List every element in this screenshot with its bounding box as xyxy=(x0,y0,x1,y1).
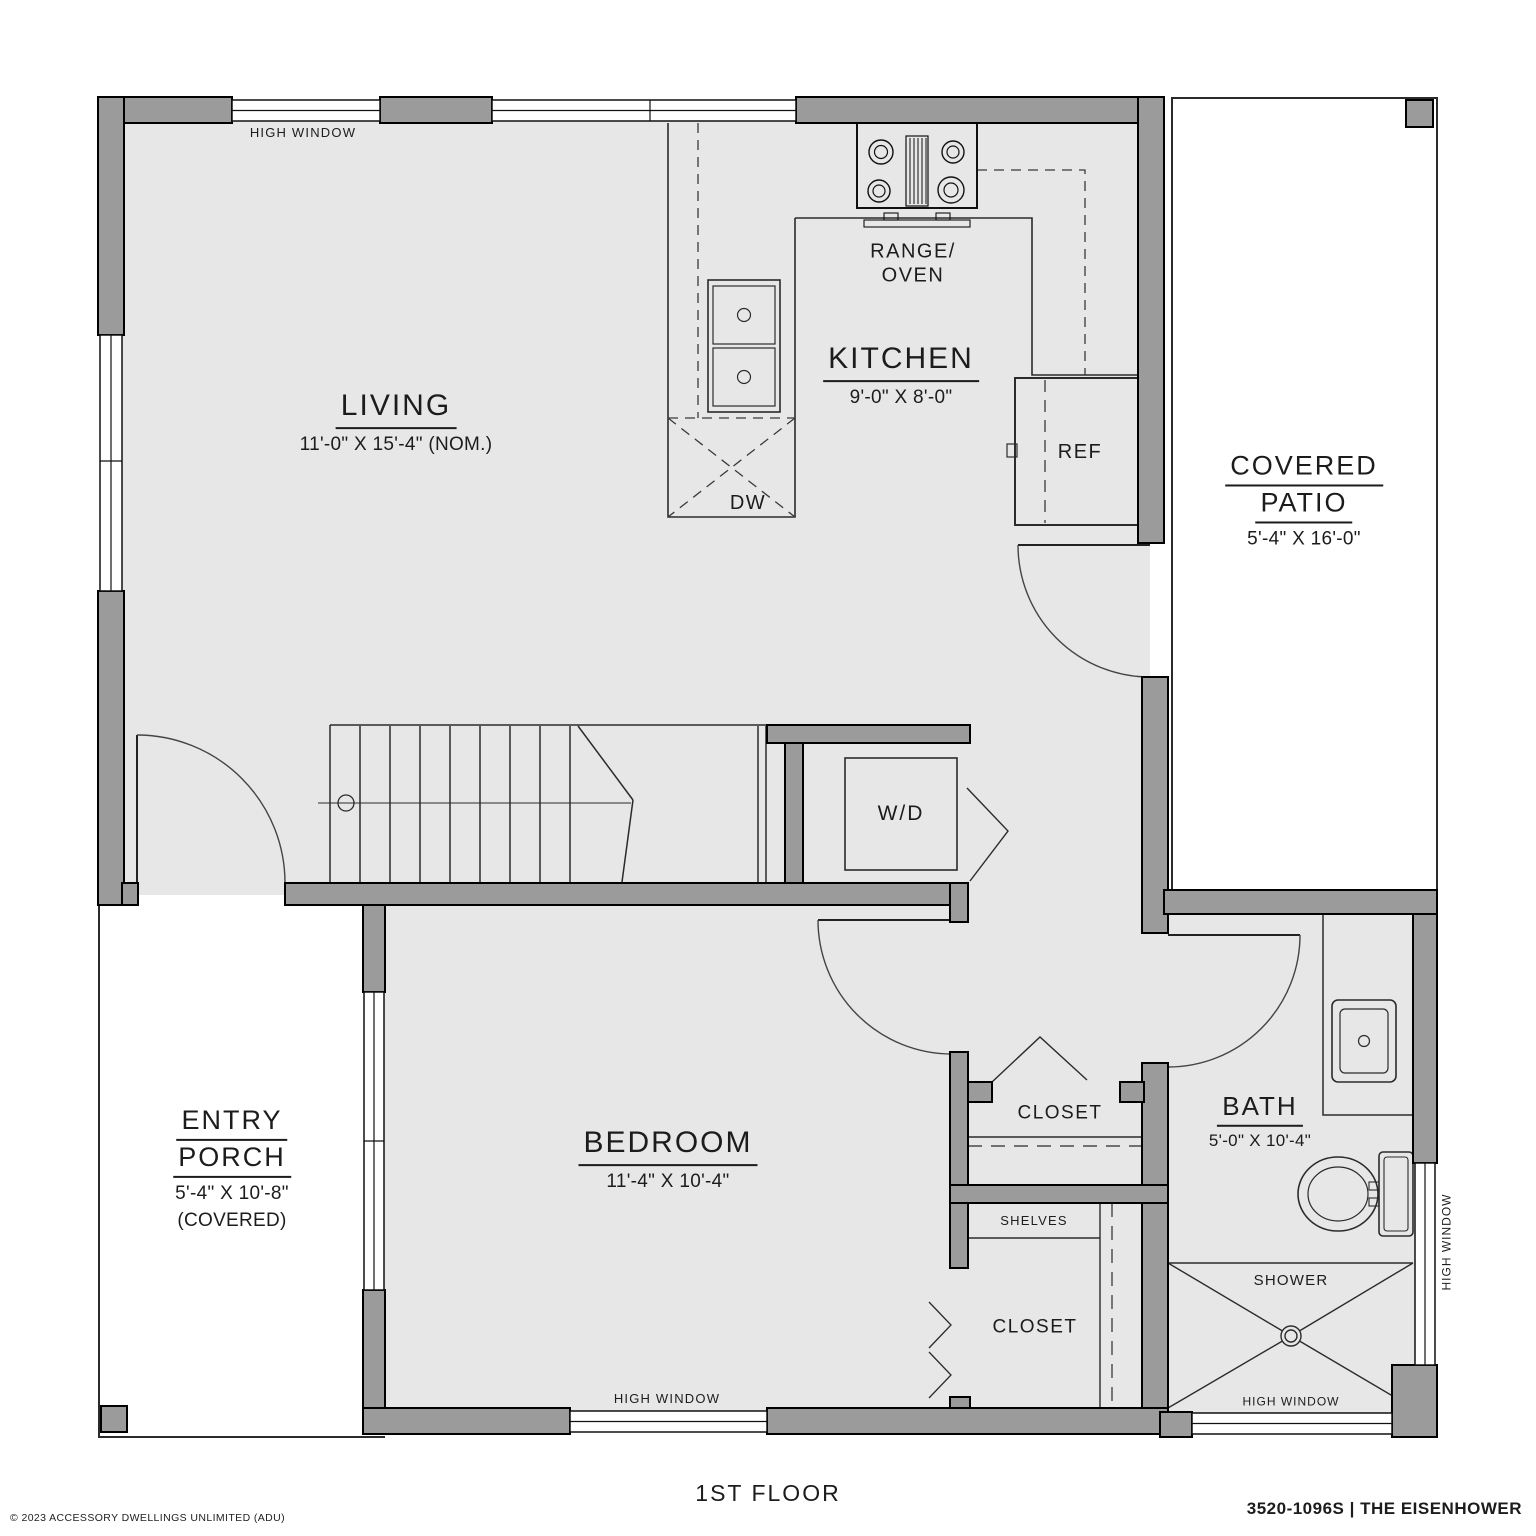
high-window-label-bedroom: HIGH WINDOW xyxy=(614,1391,720,1407)
closet-lower-label: CLOSET xyxy=(992,1315,1077,1338)
living-room-name: LIVING xyxy=(336,388,456,429)
ref-label: REF xyxy=(1058,440,1103,464)
bedroom-name: BEDROOM xyxy=(578,1125,757,1166)
shower-label: SHOWER xyxy=(1254,1272,1329,1290)
bedroom-dims: 11'-4" X 10'-4" xyxy=(578,1170,757,1193)
bedroom-label: BEDROOM 11'-4" X 10'-4" xyxy=(578,1125,757,1193)
dw-label: DW xyxy=(730,491,766,515)
porch-dims: 5'-4" X 10'-8" xyxy=(173,1182,291,1205)
high-window-label-bath-east: HIGH WINDOW xyxy=(1440,1194,1455,1291)
bath-label: BATH 5'-0" X 10'-4" xyxy=(1209,1091,1311,1151)
floor-title: 1ST FLOOR xyxy=(695,1479,840,1507)
shelves-label: SHELVES xyxy=(1000,1213,1067,1229)
kitchen-dims: 9'-0" X 8'-0" xyxy=(823,386,979,409)
floorplan-sheet: HIGH WINDOW LIVING 11'-0" X 15'-4" (NOM.… xyxy=(0,0,1536,1536)
porch-note: (COVERED) xyxy=(173,1209,291,1232)
living-room-dims: 11'-0" X 15'-4" (NOM.) xyxy=(300,433,493,456)
porch-name-line2: PORCH xyxy=(173,1141,291,1178)
kitchen-name: KITCHEN xyxy=(823,341,979,382)
bath-name: BATH xyxy=(1217,1091,1302,1127)
high-window-label-bath-south: HIGH WINDOW xyxy=(1243,1395,1340,1410)
patio-dims: 5'-4" X 16'-0" xyxy=(1225,527,1383,550)
labels-overlay: HIGH WINDOW LIVING 11'-0" X 15'-4" (NOM.… xyxy=(0,0,1536,1536)
bath-dims: 5'-0" X 10'-4" xyxy=(1209,1130,1311,1151)
plan-code: 3520-1096S | THE EISENHOWER xyxy=(1247,1499,1522,1519)
high-window-label-top: HIGH WINDOW xyxy=(250,125,356,141)
covered-patio-label: COVERED PATIO 5'-4" X 16'-0" xyxy=(1225,449,1383,550)
copyright: © 2023 ACCESSORY DWELLINGS UNLIMITED (AD… xyxy=(10,1512,285,1524)
patio-name-line2: PATIO xyxy=(1255,486,1352,523)
patio-name-line1: COVERED xyxy=(1225,449,1383,486)
living-room-label: LIVING 11'-0" X 15'-4" (NOM.) xyxy=(300,388,493,456)
closet-upper-label: CLOSET xyxy=(1017,1101,1102,1124)
range-label-line2: OVEN xyxy=(870,264,956,288)
entry-porch-label: ENTRY PORCH 5'-4" X 10'-8" (COVERED) xyxy=(173,1104,291,1232)
range-oven-label: RANGE/ OVEN xyxy=(870,240,956,289)
wd-label: W/D xyxy=(878,801,925,827)
porch-name-line1: ENTRY xyxy=(176,1104,287,1141)
range-label-line1: RANGE/ xyxy=(870,240,956,264)
kitchen-label: KITCHEN 9'-0" X 8'-0" xyxy=(823,341,979,409)
